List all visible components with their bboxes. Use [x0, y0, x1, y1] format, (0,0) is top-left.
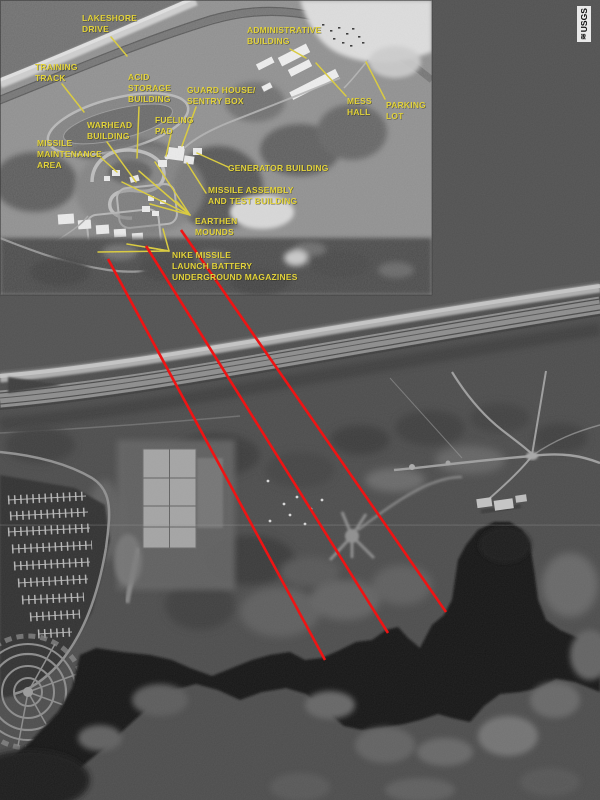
- usgs-watermark: ≋ USGS: [577, 6, 591, 42]
- usgs-agency-text: USGS: [579, 8, 589, 32]
- annotated-aerial-photo: LAKESHORE DRIVE TRAINING TRACK ADMINISTR…: [0, 0, 600, 800]
- usgs-waves-icon: ≋: [580, 33, 588, 40]
- aerial-photo-canvas: [0, 0, 600, 800]
